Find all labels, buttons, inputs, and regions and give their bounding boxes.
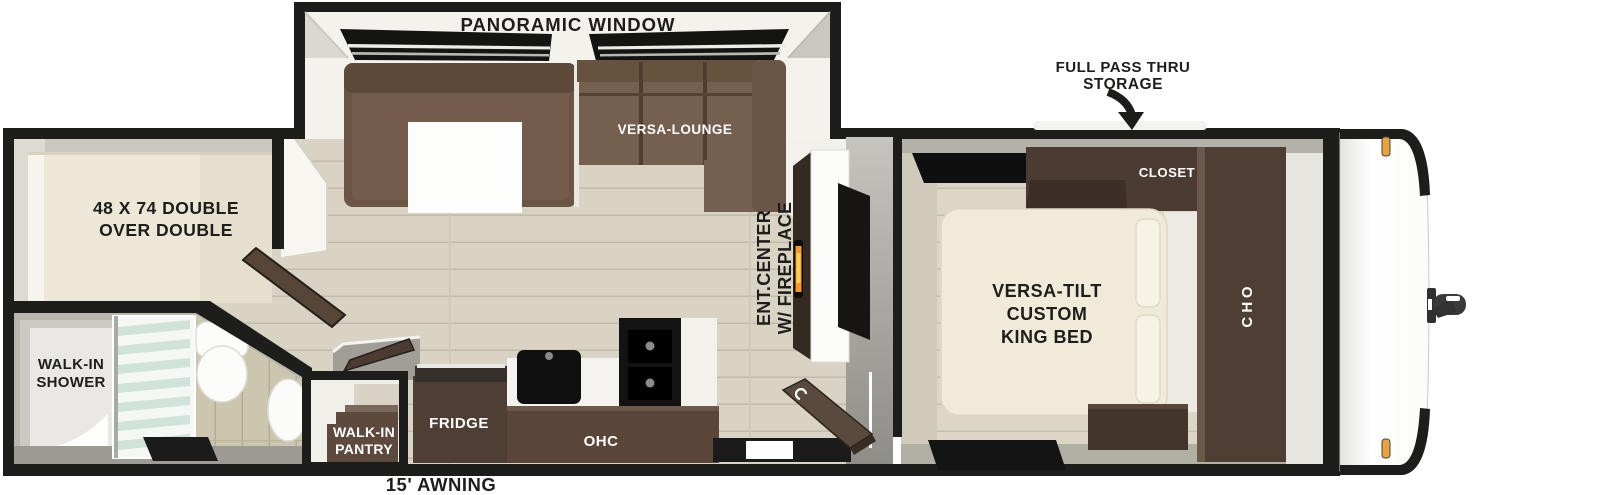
- svg-text:W/ FIREPLACE: W/ FIREPLACE: [775, 202, 795, 335]
- svg-text:C: C: [1239, 316, 1256, 327]
- svg-text:STORAGE: STORAGE: [1083, 76, 1163, 93]
- svg-text:CLOSET: CLOSET: [1139, 165, 1195, 180]
- svg-text:VERSA-LOUNGE: VERSA-LOUNGE: [618, 122, 733, 137]
- svg-text:OVER DOUBLE: OVER DOUBLE: [99, 220, 233, 240]
- svg-text:FRIDGE: FRIDGE: [429, 415, 489, 432]
- svg-text:VERSA-TILT: VERSA-TILT: [992, 281, 1102, 301]
- svg-text:H: H: [1239, 301, 1256, 312]
- svg-text:WALK-IN: WALK-IN: [38, 356, 104, 373]
- svg-text:PANTRY: PANTRY: [335, 441, 393, 457]
- svg-text:15' AWNING: 15' AWNING: [386, 474, 496, 495]
- svg-text:ENT.CENTER: ENT.CENTER: [754, 210, 774, 326]
- svg-text:48 X 74 DOUBLE: 48 X 74 DOUBLE: [93, 198, 239, 218]
- svg-text:WALK-IN: WALK-IN: [333, 424, 395, 440]
- svg-text:SHOWER: SHOWER: [36, 374, 105, 391]
- svg-text:FULL PASS THRU: FULL PASS THRU: [1056, 59, 1191, 76]
- svg-text:KING BED: KING BED: [1001, 327, 1093, 347]
- svg-text:PANORAMIC WINDOW: PANORAMIC WINDOW: [460, 14, 675, 35]
- svg-text:OHC: OHC: [584, 433, 619, 450]
- svg-text:CUSTOM: CUSTOM: [1007, 304, 1088, 324]
- svg-text:O: O: [1239, 286, 1256, 298]
